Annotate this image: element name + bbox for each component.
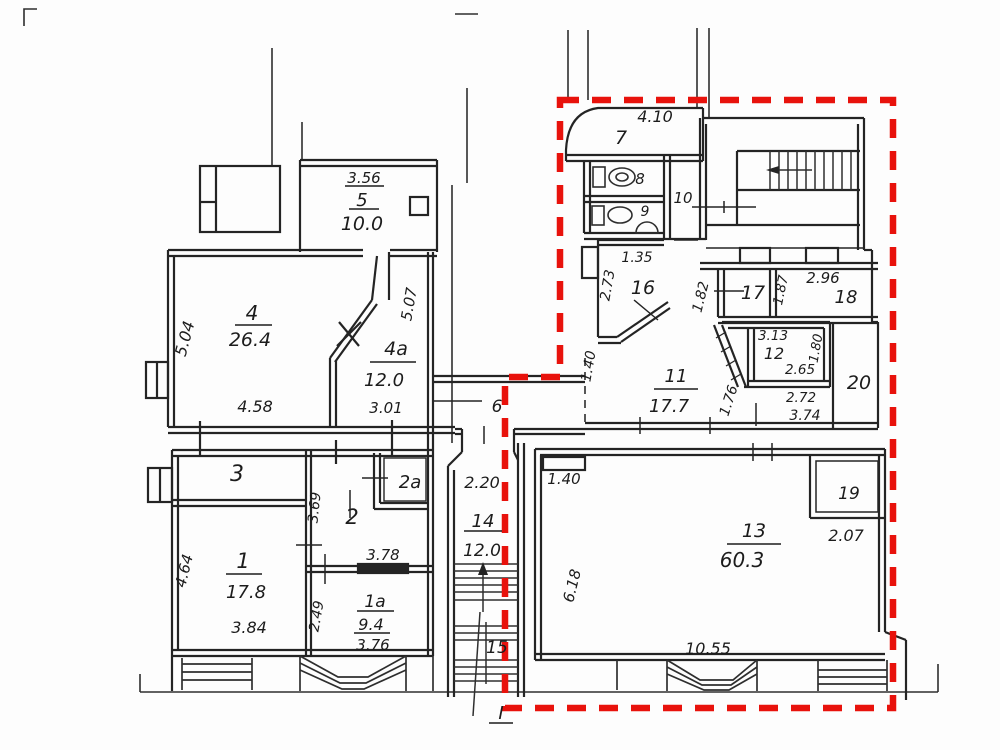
room-20-number: 20 bbox=[847, 372, 871, 394]
room-18-width-label: 2.96 bbox=[806, 269, 839, 287]
wall-recess bbox=[582, 247, 598, 278]
room-6-number: 6 bbox=[492, 397, 503, 417]
room-17-number: 17 bbox=[741, 282, 765, 304]
wc-fixtures bbox=[592, 167, 658, 233]
toilet-bowl-icon bbox=[608, 207, 632, 223]
wall-window-fill bbox=[358, 564, 408, 573]
stairwell-walls bbox=[432, 376, 585, 697]
room-19-number: 19 bbox=[838, 484, 860, 504]
room-7-width-label: 4.10 bbox=[637, 107, 673, 126]
right-building-windows bbox=[617, 660, 887, 691]
room-2-number: 2 bbox=[345, 505, 358, 529]
chimney-block bbox=[200, 166, 280, 232]
room-17-side-label: 1.87 bbox=[770, 273, 792, 306]
stairs-top-right bbox=[766, 151, 851, 190]
room-16-side-label: 1.82 bbox=[690, 280, 713, 314]
toilet-bowl-icon bbox=[609, 168, 635, 186]
room-4a-number: 4a bbox=[384, 338, 408, 360]
room-3-number: 3 bbox=[230, 462, 244, 487]
vent-box bbox=[806, 248, 838, 263]
door-symbol bbox=[410, 197, 428, 215]
room-4a-height-label: 5.07 bbox=[397, 286, 421, 322]
wall-niche bbox=[543, 457, 585, 470]
labels: 3.56 5 10.0 4 26.4 5.04 4.58 4a 12.0 5.0… bbox=[171, 107, 871, 724]
toilet-tank-icon bbox=[592, 206, 604, 225]
room-2a-number: 2a bbox=[399, 472, 421, 493]
room-13-niche-label: 1.40 bbox=[547, 470, 580, 488]
floor-plan-scan: 3.56 5 10.0 4 26.4 5.04 4.58 4a 12.0 5.0… bbox=[0, 0, 1000, 750]
sink-icon bbox=[636, 222, 658, 233]
room-5-number: 5 bbox=[356, 190, 367, 211]
site-lines bbox=[24, 9, 938, 692]
room-1-width-label: 3.84 bbox=[231, 618, 267, 637]
room-1a-height-label: 2.49 bbox=[306, 599, 327, 633]
room-10-number: 10 bbox=[673, 189, 692, 207]
toilet-tank-icon bbox=[593, 167, 605, 187]
room-11-number: 11 bbox=[665, 366, 688, 387]
room-5-width-label: 3.56 bbox=[347, 169, 380, 187]
room-12-below-width2-label: 3.74 bbox=[789, 408, 820, 424]
left-building-windows bbox=[182, 656, 433, 691]
room-4-area-label: 26.4 bbox=[229, 329, 271, 351]
room-1a-area-label: 9.4 bbox=[358, 615, 383, 634]
room-1-area-label: 17.8 bbox=[226, 582, 266, 603]
room-9-number: 9 bbox=[641, 204, 650, 220]
room-13-width-label: 10.55 bbox=[685, 639, 731, 658]
room-16-width-label: 1.35 bbox=[621, 250, 652, 266]
vent-box bbox=[740, 248, 770, 263]
left-building-walls bbox=[146, 160, 455, 691]
room-11-diag-label: 1.76 bbox=[717, 383, 742, 418]
room-4-width-label: 4.58 bbox=[237, 397, 273, 416]
room-7-number: 7 bbox=[615, 127, 627, 149]
room-14-width-label: 2.20 bbox=[464, 473, 500, 492]
entrance-label: I bbox=[498, 703, 503, 724]
room-16-height-label: 2.73 bbox=[597, 269, 618, 302]
room-16-number: 16 bbox=[631, 277, 655, 299]
room-14-number: 14 bbox=[472, 511, 495, 532]
room-2-height-label: 3.69 bbox=[305, 491, 324, 524]
room-4a-area-label: 12.0 bbox=[364, 370, 404, 391]
room-1a-number: 1a bbox=[364, 592, 385, 612]
room-13-number: 13 bbox=[742, 520, 766, 542]
room-12-inner-width-label: 2.65 bbox=[785, 362, 815, 378]
room-4-number: 4 bbox=[246, 301, 259, 325]
room-4a-width-label: 3.01 bbox=[369, 399, 402, 417]
room-12-top-width-label: 3.13 bbox=[758, 328, 788, 344]
label-15-leader bbox=[473, 612, 480, 716]
floor-plan-svg: 3.56 5 10.0 4 26.4 5.04 4.58 4a 12.0 5.0… bbox=[0, 0, 1000, 750]
room-14-area-label: 12.0 bbox=[463, 541, 501, 561]
room-1-height-label: 4.64 bbox=[171, 552, 197, 589]
room-19-width-label: 2.07 bbox=[828, 526, 864, 545]
room-8-number: 8 bbox=[635, 170, 645, 188]
room-18-number: 18 bbox=[835, 287, 858, 308]
room-1a-width-label: 3.76 bbox=[356, 636, 389, 654]
room-13-height-label: 6.18 bbox=[559, 567, 585, 604]
room-1a-top-width-label: 3.78 bbox=[366, 546, 399, 564]
room-12-number: 12 bbox=[764, 344, 784, 363]
room-15-number: 15 bbox=[486, 638, 508, 658]
room-11-height-label: 1.40 bbox=[578, 349, 599, 383]
room-12-below-width-label: 2.72 bbox=[786, 390, 816, 406]
room-5-area-label: 10.0 bbox=[341, 213, 383, 235]
bay-window bbox=[300, 656, 406, 677]
room-13-area-label: 60.3 bbox=[720, 548, 765, 572]
room-11-area-label: 17.7 bbox=[649, 396, 690, 417]
room-1-number: 1 bbox=[236, 549, 249, 573]
